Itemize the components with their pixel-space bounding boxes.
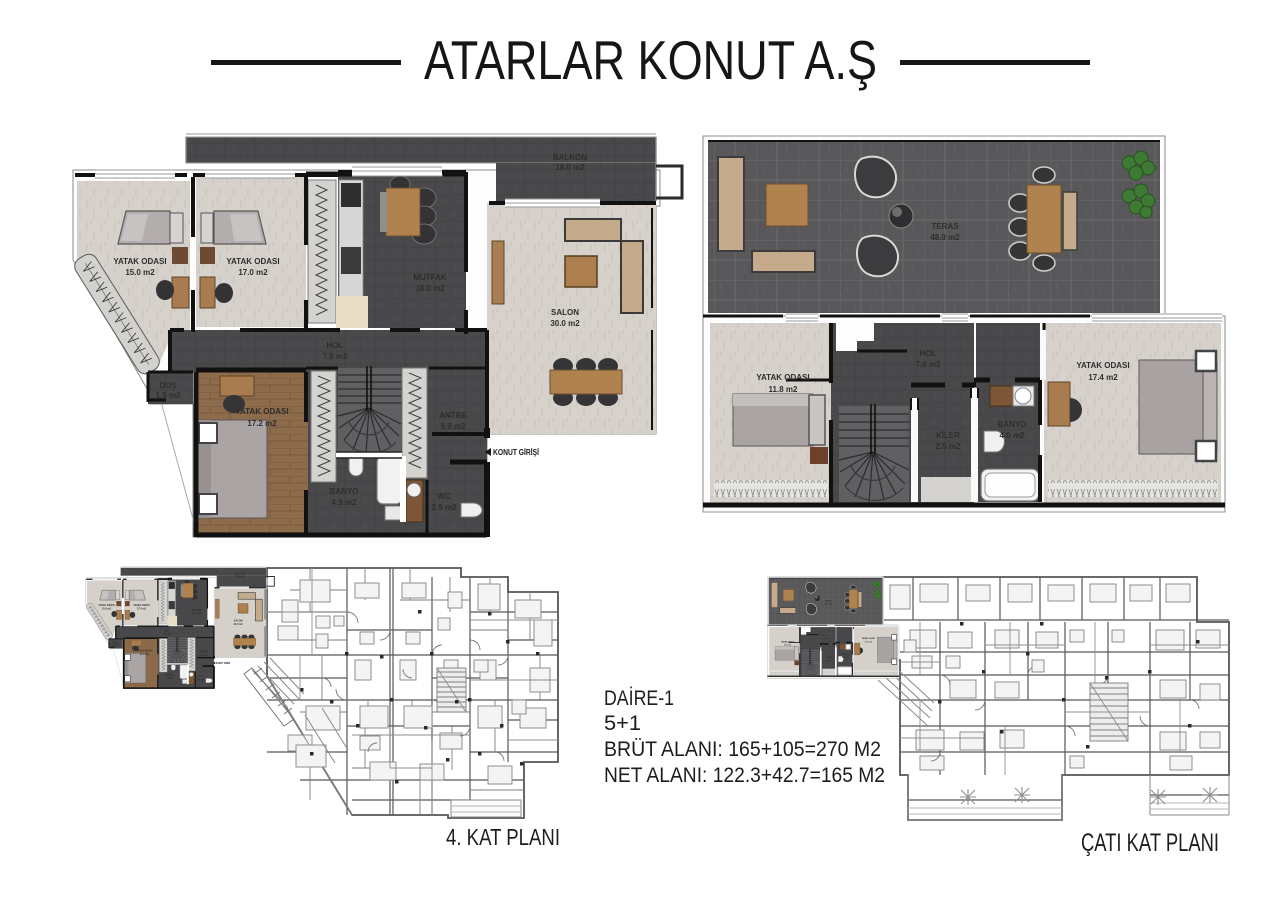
svg-text:YATAK ODASI: YATAK ODASI (235, 407, 288, 416)
svg-text:TERAS: TERAS (931, 222, 959, 231)
svg-text:18.0 m2: 18.0 m2 (555, 163, 585, 172)
svg-text:15.0 m2: 15.0 m2 (125, 268, 155, 277)
svg-text:YATAK ODASI: YATAK ODASI (226, 257, 279, 266)
svg-text:NET ALANI: 122.3+42.7=165 M2: NET ALANI: 122.3+42.7=165 M2 (604, 764, 885, 787)
svg-text:BANYO: BANYO (330, 487, 359, 496)
svg-text:HOL: HOL (920, 349, 937, 358)
svg-text:4. KAT PLANI: 4. KAT PLANI (446, 824, 560, 850)
svg-text:MUTFAK: MUTFAK (413, 273, 447, 282)
svg-text:30.0 m2: 30.0 m2 (550, 319, 580, 328)
svg-text:18.0 m2: 18.0 m2 (415, 284, 445, 293)
svg-text:2.9 m2: 2.9 m2 (432, 503, 457, 512)
svg-text:48.0 m2: 48.0 m2 (930, 233, 960, 242)
svg-text:SALON: SALON (551, 308, 579, 317)
svg-text:17.2 m2: 17.2 m2 (247, 419, 277, 428)
svg-text:WC: WC (437, 492, 451, 501)
svg-text:BALKON: BALKON (553, 153, 587, 162)
svg-text:7.0 m2: 7.0 m2 (916, 360, 941, 369)
svg-text:5+1: 5+1 (604, 712, 641, 735)
svg-text:DAİRE-1: DAİRE-1 (604, 687, 674, 710)
svg-text:17.4 m2: 17.4 m2 (1088, 373, 1118, 382)
svg-text:YATAK ODASI: YATAK ODASI (113, 257, 166, 266)
svg-text:4.9 m2: 4.9 m2 (332, 498, 357, 507)
svg-text:ANTRE: ANTRE (439, 411, 467, 420)
svg-text:HOL: HOL (327, 341, 344, 350)
svg-text:ATARLAR KONUT A.Ş: ATARLAR KONUT A.Ş (424, 29, 877, 91)
svg-text:2.5 m2: 2.5 m2 (936, 442, 961, 451)
svg-text:DUŞ: DUŞ (160, 381, 178, 390)
svg-text:17.0 m2: 17.0 m2 (238, 268, 268, 277)
svg-text:ÇATI KAT PLANI: ÇATI KAT PLANI (1081, 829, 1219, 857)
svg-text:BANYO: BANYO (998, 420, 1027, 429)
svg-text:YATAK ODASI: YATAK ODASI (1076, 361, 1129, 370)
svg-text:4.0 m2: 4.0 m2 (1000, 431, 1025, 440)
svg-text:11.8 m2: 11.8 m2 (769, 385, 798, 394)
svg-text:KONUT GİRİŞİ: KONUT GİRİŞİ (493, 448, 539, 457)
svg-text:BRÜT ALANI: 165+105=270 M2: BRÜT ALANI: 165+105=270 M2 (604, 738, 881, 761)
svg-text:7.0 m2: 7.0 m2 (323, 352, 348, 361)
svg-text:1.5 m2: 1.5 m2 (156, 391, 181, 400)
svg-text:9.9 m2: 9.9 m2 (441, 422, 466, 431)
svg-text:KİLER: KİLER (936, 431, 960, 440)
svg-text:YATAK ODASI: YATAK ODASI (756, 373, 809, 382)
